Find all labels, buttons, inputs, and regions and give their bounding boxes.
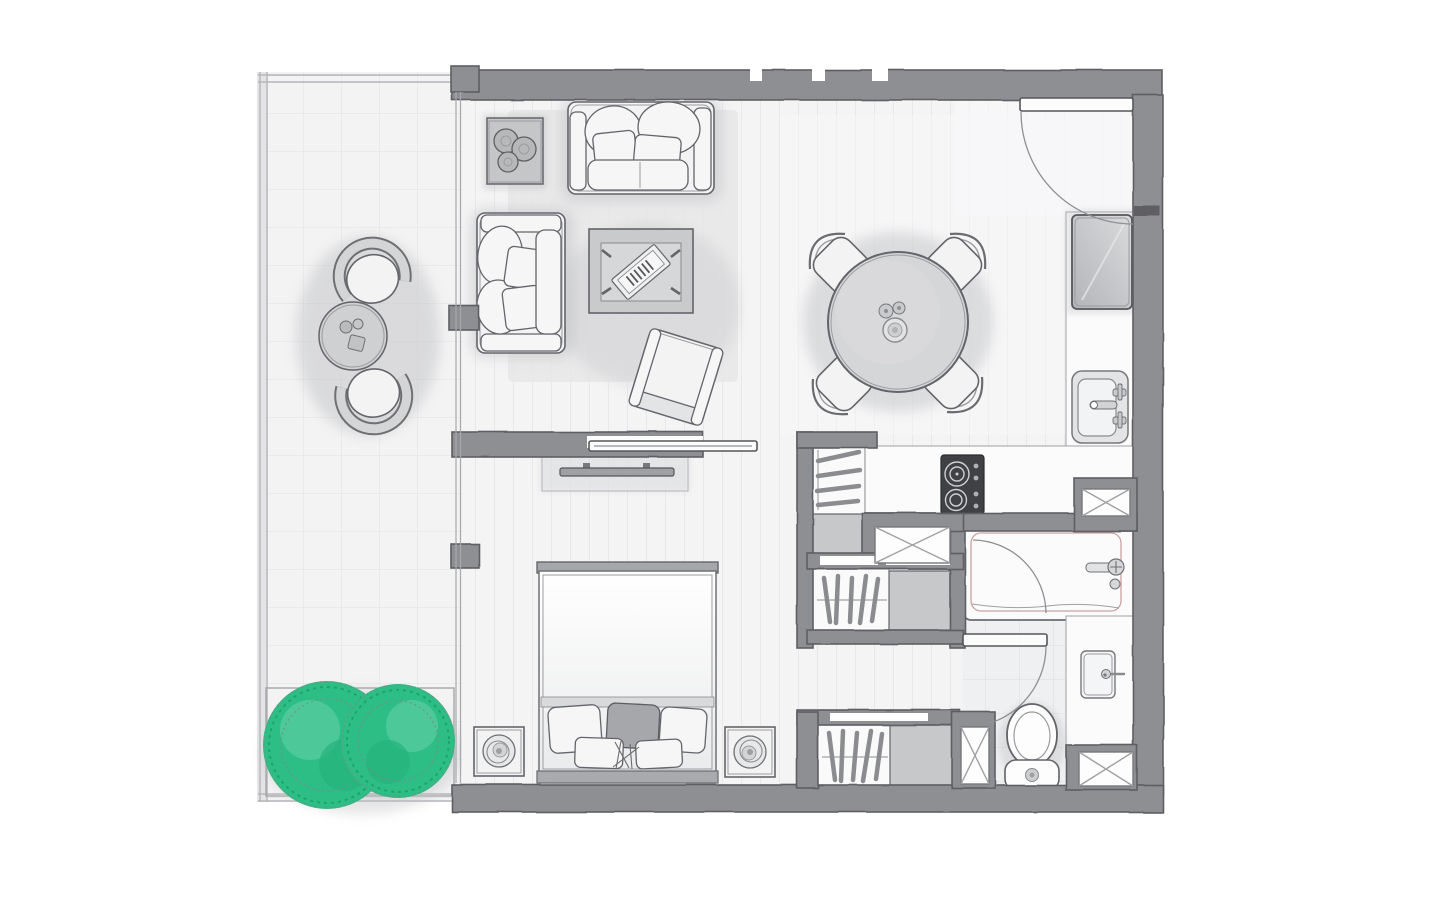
knob-icon — [974, 492, 979, 497]
nightstand-left — [474, 727, 524, 776]
sliding-pocket-door — [589, 441, 757, 451]
wall-end-cap — [1134, 206, 1160, 216]
wall-closet-left — [797, 432, 813, 648]
mullion-post — [451, 544, 479, 568]
headboard — [537, 771, 718, 783]
wall-right — [1133, 95, 1163, 795]
lamp-icon — [483, 735, 515, 767]
service-shaft — [1082, 489, 1130, 516]
closet-door-track — [830, 713, 928, 721]
knob-icon — [974, 476, 979, 481]
service-shaft — [875, 527, 950, 563]
dining-area — [803, 232, 993, 416]
lamp-icon — [734, 736, 766, 768]
wardrobe-tall — [809, 446, 865, 562]
bushes — [262, 681, 462, 814]
pillow — [635, 739, 682, 769]
cooktop — [941, 455, 984, 514]
seat-cushion — [536, 230, 561, 334]
service-shaft — [1079, 752, 1133, 786]
sofa-small — [473, 213, 565, 353]
wall-closet-top — [797, 432, 877, 448]
sofa-armrest — [570, 112, 586, 190]
living-room — [470, 98, 740, 426]
entry-door-leaf — [1020, 98, 1133, 111]
sofa-armrest — [481, 334, 561, 351]
knob-icon — [974, 464, 979, 469]
bistro-table — [318, 301, 388, 371]
bush-icon — [341, 684, 455, 798]
tv-screen — [560, 468, 674, 476]
tv-unit — [540, 455, 690, 492]
side-table — [483, 114, 547, 190]
coffee-table — [589, 229, 693, 313]
mullion-post — [449, 306, 479, 330]
bed — [537, 562, 718, 783]
wardrobe-upper — [813, 569, 955, 630]
floor-plan-page — [0, 0, 1440, 900]
wall-closetB-bottom — [807, 630, 963, 644]
mullion-post — [451, 66, 479, 92]
bathtub — [963, 526, 1135, 620]
wardrobe-lower — [818, 725, 955, 787]
seat-cushion — [588, 160, 688, 190]
wall-closetC-left — [797, 712, 818, 788]
vanity — [1066, 616, 1135, 748]
balcony — [257, 72, 462, 814]
bathroom-door-leaf — [963, 634, 1047, 646]
wardrobe-shelf — [889, 571, 955, 630]
cup-icon — [353, 319, 363, 329]
knob-icon — [974, 504, 979, 509]
closet-door-track — [820, 556, 878, 565]
refrigerator — [1072, 215, 1132, 309]
wardrobe-shelf — [890, 725, 955, 787]
floor-plan — [0, 0, 1440, 900]
wall-top — [452, 70, 1162, 100]
kitchen-sink — [1072, 371, 1128, 443]
mug-icon — [348, 335, 366, 352]
cup-icon — [340, 321, 352, 333]
service-shaft — [961, 727, 989, 784]
wall-bottom — [452, 785, 1163, 812]
nightstand-right — [725, 727, 775, 777]
sofa-large — [568, 99, 714, 194]
